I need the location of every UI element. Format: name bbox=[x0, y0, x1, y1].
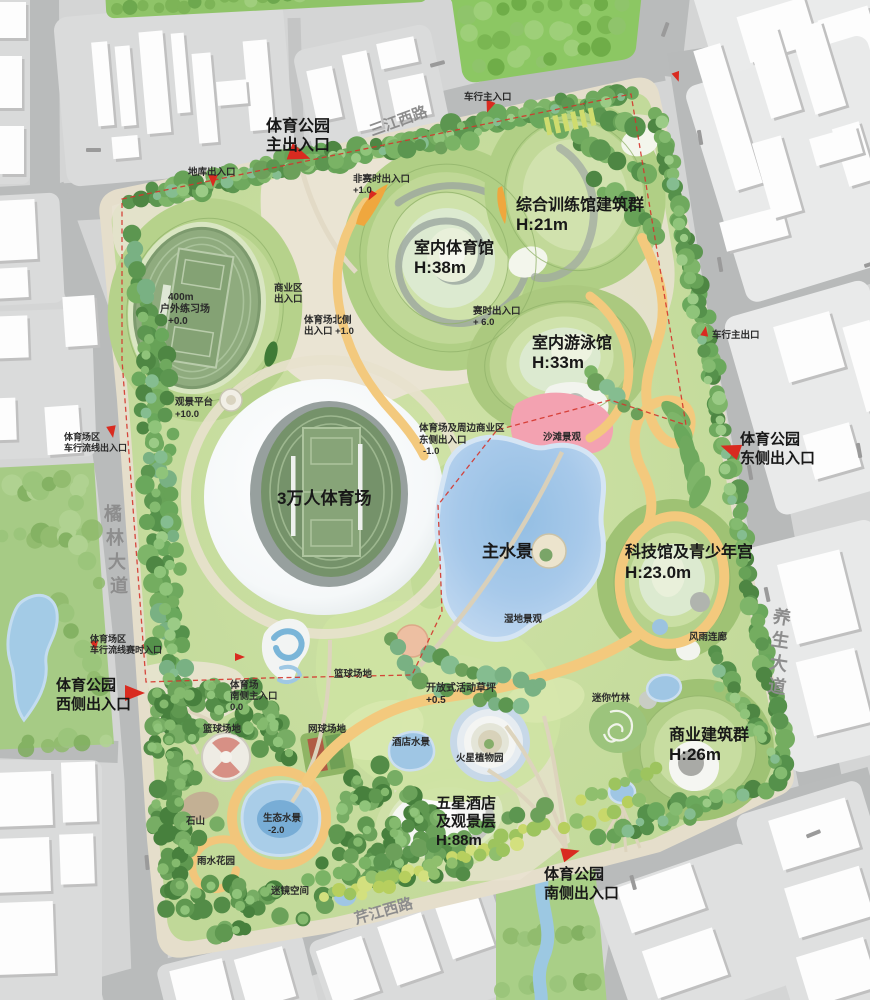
svg-text:体育场: 体育场 bbox=[230, 679, 259, 691]
svg-text:体育场区: 体育场区 bbox=[90, 633, 126, 644]
svg-text:H:33m: H:33m bbox=[532, 353, 584, 372]
svg-text:开放式活动草坪: 开放式活动草坪 bbox=[426, 681, 496, 694]
svg-text:综合训练馆建筑群: 综合训练馆建筑群 bbox=[516, 195, 644, 214]
svg-text:H:88m: H:88m bbox=[436, 832, 482, 849]
svg-text:篮球场地: 篮球场地 bbox=[202, 723, 242, 735]
svg-text:雨水花园: 雨水花园 bbox=[197, 855, 235, 867]
svg-text:南侧主入口: 南侧主入口 bbox=[230, 690, 278, 702]
svg-text:出入口 +1.0: 出入口 +1.0 bbox=[304, 325, 354, 337]
svg-text:室内游泳馆: 室内游泳馆 bbox=[532, 333, 612, 352]
svg-text:体育公园: 体育公园 bbox=[266, 116, 330, 135]
svg-text:H:23.0m: H:23.0m bbox=[625, 563, 691, 582]
svg-text:东侧出入口: 东侧出入口 bbox=[419, 434, 467, 446]
svg-text:室内体育馆: 室内体育馆 bbox=[414, 238, 494, 257]
svg-text:体育公园: 体育公园 bbox=[56, 676, 116, 694]
svg-text:H:21m: H:21m bbox=[516, 215, 568, 234]
svg-text:非赛时出入口: 非赛时出入口 bbox=[353, 173, 410, 185]
svg-text:主出入口: 主出入口 bbox=[266, 135, 330, 154]
svg-text:五星酒店: 五星酒店 bbox=[436, 794, 496, 812]
svg-text:湿地景观: 湿地景观 bbox=[504, 613, 543, 625]
svg-text:+0.5: +0.5 bbox=[426, 695, 446, 706]
svg-text:+ 6.0: + 6.0 bbox=[473, 317, 494, 328]
svg-text:户外练习场: 户外练习场 bbox=[159, 302, 210, 315]
svg-text:H:38m: H:38m bbox=[414, 258, 466, 277]
svg-text:车行主入口: 车行主入口 bbox=[464, 91, 512, 103]
svg-text:火星植物园: 火星植物园 bbox=[456, 752, 504, 764]
svg-text:风雨连廊: 风雨连廊 bbox=[689, 631, 728, 643]
svg-text:主水景: 主水景 bbox=[482, 541, 533, 561]
svg-text:出入口: 出入口 bbox=[274, 293, 303, 305]
svg-text:及观景层: 及观景层 bbox=[436, 812, 496, 830]
svg-text:+10.0: +10.0 bbox=[175, 409, 199, 420]
svg-text:+0.0: +0.0 bbox=[168, 316, 188, 327]
svg-text:3万人体育场: 3万人体育场 bbox=[277, 488, 371, 508]
svg-text:体育场区: 体育场区 bbox=[64, 431, 100, 442]
svg-text:观景平台: 观景平台 bbox=[174, 396, 214, 408]
svg-text:体育场及周边商业区: 体育场及周边商业区 bbox=[419, 422, 505, 434]
svg-text:石山: 石山 bbox=[185, 815, 205, 827]
svg-text:车行流线赛时入口: 车行流线赛时入口 bbox=[90, 644, 162, 655]
svg-text:0.0: 0.0 bbox=[230, 702, 243, 713]
svg-text:体育场北侧: 体育场北侧 bbox=[304, 314, 352, 326]
svg-text:科技馆及青少年宫: 科技馆及青少年宫 bbox=[625, 542, 753, 561]
svg-text:沙滩景观: 沙滩景观 bbox=[543, 431, 582, 443]
svg-text:体育公园: 体育公园 bbox=[740, 430, 800, 448]
svg-text:网球场地: 网球场地 bbox=[308, 723, 347, 735]
svg-text:篮球场地: 篮球场地 bbox=[333, 668, 373, 680]
svg-text:商业建筑群: 商业建筑群 bbox=[669, 725, 749, 744]
svg-text:东侧出入口: 东侧出入口 bbox=[740, 449, 815, 467]
svg-text:-1.0: -1.0 bbox=[423, 446, 439, 457]
svg-text:地库出入口: 地库出入口 bbox=[188, 166, 236, 178]
svg-text:H:26m: H:26m bbox=[669, 745, 721, 764]
svg-text:+1.0: +1.0 bbox=[353, 185, 372, 196]
svg-text:生态水景: 生态水景 bbox=[263, 812, 302, 824]
svg-text:南侧出入口: 南侧出入口 bbox=[544, 884, 619, 902]
svg-text:400m: 400m bbox=[168, 292, 194, 303]
svg-text:-2.0: -2.0 bbox=[268, 825, 284, 836]
svg-text:赛时出入口: 赛时出入口 bbox=[472, 305, 521, 317]
svg-text:商业区: 商业区 bbox=[274, 282, 303, 294]
svg-text:迷镜空间: 迷镜空间 bbox=[270, 885, 309, 897]
svg-text:体育公园: 体育公园 bbox=[544, 865, 604, 883]
svg-text:酒店水景: 酒店水景 bbox=[392, 736, 431, 748]
svg-text:车行主出口: 车行主出口 bbox=[712, 329, 760, 341]
svg-text:西侧出入口: 西侧出入口 bbox=[56, 695, 131, 713]
svg-text:迷你竹林: 迷你竹林 bbox=[591, 692, 631, 704]
svg-text:车行流线出入口: 车行流线出入口 bbox=[64, 442, 127, 453]
